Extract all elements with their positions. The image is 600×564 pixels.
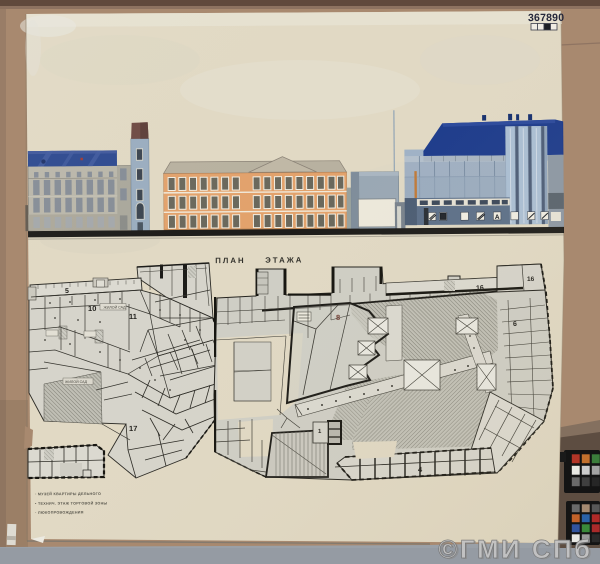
svg-text:©ГМИ СПб: ©ГМИ СПб — [438, 534, 592, 564]
